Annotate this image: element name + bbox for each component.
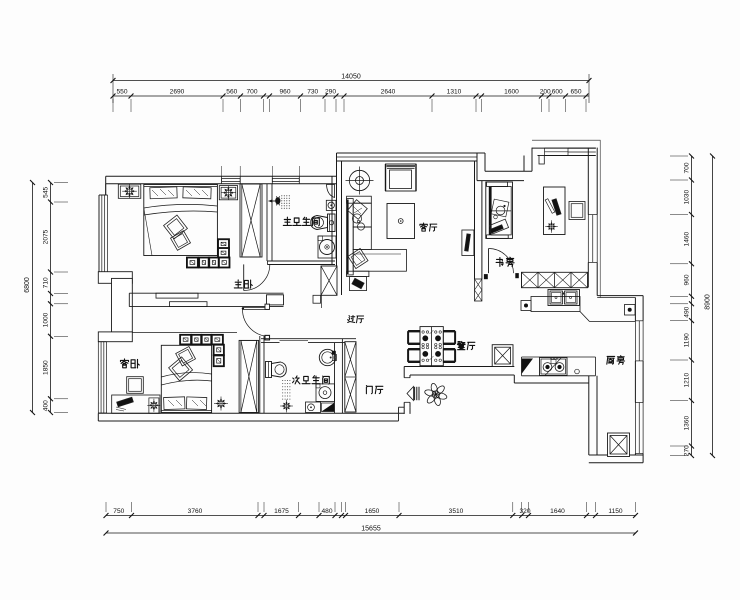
- svg-text:545: 545: [43, 186, 50, 197]
- svg-text:3510: 3510: [449, 508, 464, 515]
- svg-text:600: 600: [552, 89, 563, 96]
- svg-text:1000: 1000: [43, 312, 50, 327]
- svg-text:1850: 1850: [43, 360, 50, 375]
- svg-text:1600: 1600: [504, 89, 519, 96]
- svg-text:700: 700: [684, 162, 691, 173]
- svg-text:14050: 14050: [341, 74, 361, 81]
- svg-text:1460: 1460: [684, 231, 691, 246]
- svg-text:1675: 1675: [274, 508, 289, 515]
- svg-text:1030: 1030: [684, 190, 691, 205]
- svg-text:1150: 1150: [608, 508, 623, 515]
- svg-text:1640: 1640: [550, 508, 565, 515]
- svg-text:700: 700: [246, 89, 257, 96]
- svg-text:960: 960: [684, 274, 691, 285]
- svg-text:1310: 1310: [447, 89, 462, 96]
- svg-text:490: 490: [684, 306, 691, 317]
- svg-text:290: 290: [325, 89, 336, 96]
- svg-text:550: 550: [116, 89, 127, 96]
- svg-text:400: 400: [43, 400, 50, 411]
- svg-text:650: 650: [570, 89, 581, 96]
- svg-text:710: 710: [43, 277, 50, 288]
- svg-text:750: 750: [113, 508, 124, 515]
- svg-text:480: 480: [321, 508, 332, 515]
- svg-text:2690: 2690: [170, 89, 185, 96]
- svg-text:2075: 2075: [43, 229, 50, 244]
- svg-text:560: 560: [226, 89, 237, 96]
- svg-text:1190: 1190: [684, 333, 691, 348]
- svg-text:8900: 8900: [705, 294, 712, 310]
- svg-text:960: 960: [279, 89, 290, 96]
- svg-text:3760: 3760: [188, 508, 203, 515]
- svg-text:6800: 6800: [24, 277, 31, 293]
- svg-text:320: 320: [519, 508, 530, 515]
- svg-text:200: 200: [540, 89, 551, 96]
- svg-text:270: 270: [684, 445, 691, 456]
- svg-text:730: 730: [307, 89, 318, 96]
- svg-text:15655: 15655: [361, 526, 381, 533]
- svg-text:1210: 1210: [684, 373, 691, 388]
- svg-text:1650: 1650: [365, 508, 380, 515]
- svg-text:2640: 2640: [381, 89, 396, 96]
- svg-text:1360: 1360: [684, 416, 691, 431]
